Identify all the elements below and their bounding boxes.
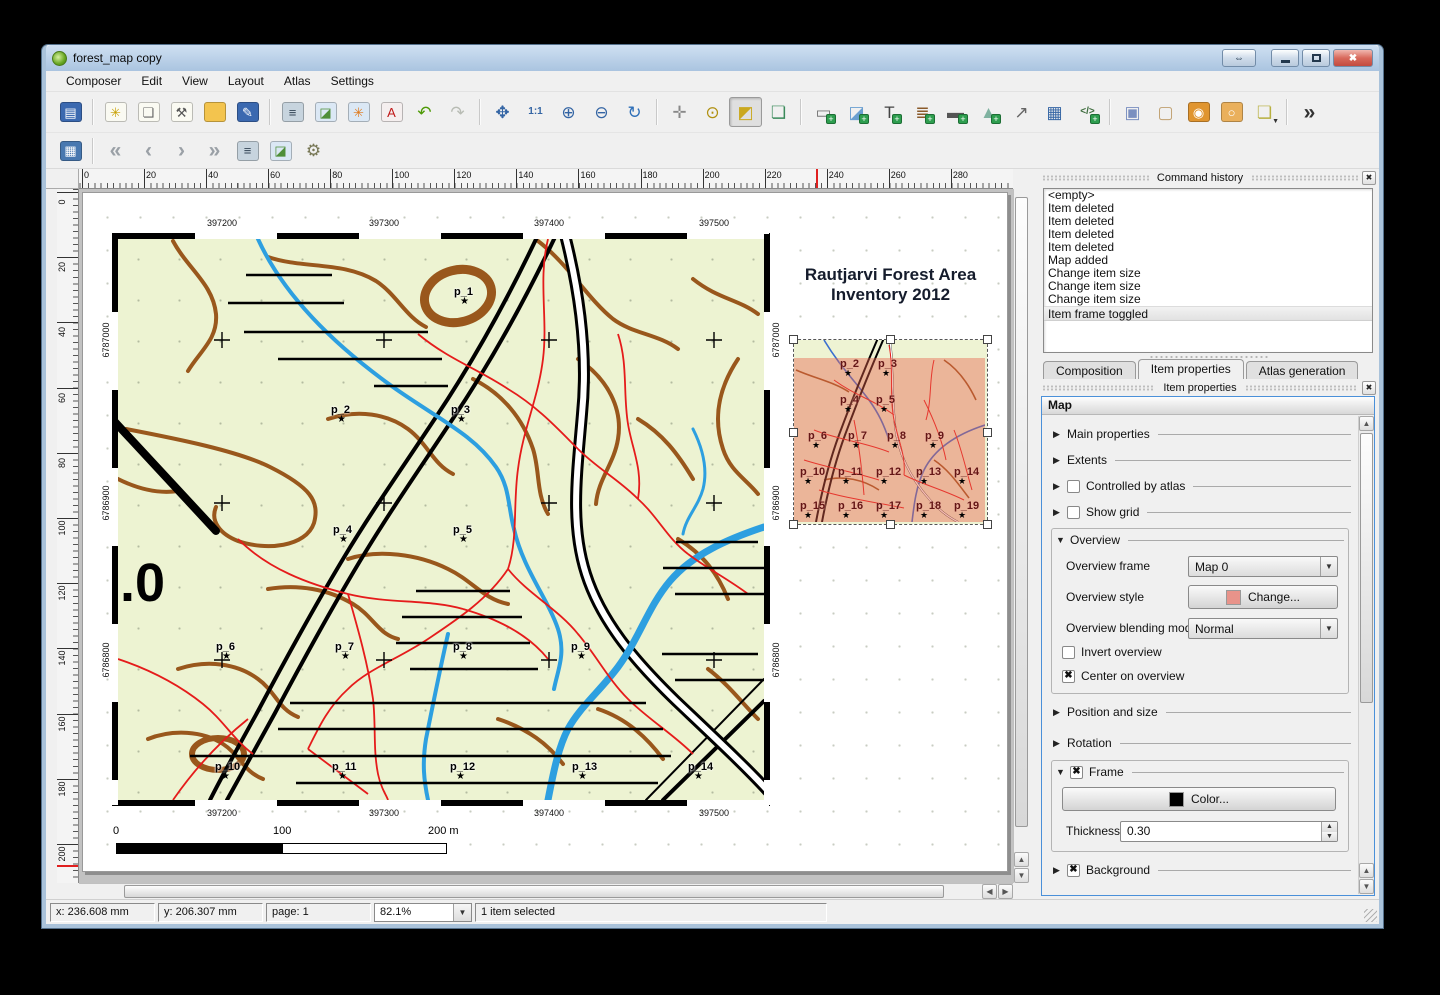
undo-icon: ↶ (417, 104, 431, 121)
section-line (1166, 712, 1351, 713)
overview-map-item[interactable]: p_2★p_3★p_4★p_5★p_6★p_7★p_8★p_9★p_10★p_1… (794, 340, 987, 524)
add-attribute-table-button[interactable]: ▦ (1038, 97, 1071, 127)
menu-view[interactable]: View (172, 72, 218, 90)
scroll-right-button[interactable]: ▶ (998, 884, 1013, 899)
duplicate-composition-icon: ❏ (138, 102, 160, 122)
panel-scroll-down-button[interactable]: ▼ (1359, 879, 1374, 894)
section-background[interactable]: ▶ ✖ Background (1053, 862, 1351, 878)
map-point-p_6: p_6★ (216, 637, 256, 662)
redo-button[interactable]: ↷ (441, 97, 474, 127)
map-drawing: .0 (118, 239, 764, 800)
controlled-by-atlas-checkbox[interactable] (1067, 480, 1080, 493)
chevron-down-icon: ▼ (453, 904, 471, 921)
section-main-properties[interactable]: ▶ Main properties (1053, 426, 1351, 442)
canvas-horizontal-scrollbar[interactable]: ◀ ▶ (79, 883, 1013, 899)
ruler-tick (206, 169, 207, 189)
ruler-corner (46, 169, 79, 189)
section-show-grid[interactable]: ▶ Show grid (1053, 504, 1351, 520)
horizontal-ruler: 0204060801001201401601802002202402602803… (79, 169, 1013, 189)
selection-handle-nw[interactable] (789, 335, 798, 344)
section-line (1158, 434, 1351, 435)
overview-point-p_19: p_19★ (954, 496, 979, 520)
command-history-title: Command history (1149, 172, 1251, 184)
section-label: Rotation (1067, 736, 1112, 750)
zoom-full-button[interactable]: ✥ (486, 97, 519, 127)
map-canvas[interactable]: .0 p_1★p_2★p_3★p_4★p_5★p_6★p_7★p_8★p_9★p… (118, 239, 764, 800)
ruler-row: 0204060801001201401601802002202402602803… (46, 169, 1036, 189)
frame-groupbox: ▼ ✖ Frame Color... Thickness (1051, 760, 1349, 852)
panel-scroll-up2-button[interactable]: ▲ (1359, 863, 1374, 878)
add-arrow-button[interactable]: ↗ (1005, 97, 1038, 127)
ruler-tick (703, 169, 704, 189)
save-as-template-button[interactable]: ✎ (231, 97, 264, 127)
overview-frame-combo[interactable]: Map 0 ▼ (1188, 556, 1338, 577)
section-label: Controlled by atlas (1086, 479, 1185, 493)
background-checkbox[interactable]: ✖ (1067, 864, 1080, 877)
refresh-view-button[interactable]: ↻ (618, 97, 651, 127)
item-properties-close-button[interactable]: ✖ (1362, 381, 1376, 395)
selection-handle-sw[interactable] (789, 520, 798, 529)
resize-grip[interactable] (1364, 909, 1377, 922)
ruler-number: 100 (57, 513, 67, 543)
menu-layout[interactable]: Layout (218, 72, 274, 90)
menu-settings[interactable]: Settings (321, 72, 384, 90)
overview-point-p_11: p_11★ (838, 462, 862, 486)
status-bar: x: 236.608 mm y: 206.307 mm page: 1 82.1… (46, 899, 1379, 924)
add-attribute-table-icon: ▦ (1046, 104, 1062, 121)
panel-scroll-thumb[interactable] (1360, 433, 1373, 703)
menu-atlas[interactable]: Atlas (274, 72, 321, 90)
map-point-p_8: p_8★ (453, 637, 493, 662)
ruler-number: 160 (57, 709, 67, 739)
print-atlas-button[interactable]: ≡ (231, 136, 264, 166)
pan-button[interactable]: ✛ (663, 97, 696, 127)
dock-title-texture (1251, 175, 1358, 181)
ruler-number: 120 (456, 170, 471, 180)
star-marker-icon: ★ (842, 511, 863, 520)
canvas-area: 0204060801001201401601802002202402602803… (46, 169, 1036, 899)
tab-composition[interactable]: Composition (1043, 361, 1136, 379)
spin-down-icon[interactable]: ▼ (1322, 832, 1337, 842)
star-marker-icon: ★ (459, 535, 493, 545)
ruler-number: 140 (518, 170, 533, 180)
item-properties-title: Item properties (1155, 382, 1244, 394)
previous-feature-icon: ‹ (145, 140, 152, 161)
menu-edit[interactable]: Edit (131, 72, 172, 90)
ruler-tick (889, 169, 890, 189)
next-feature-icon: › (178, 140, 185, 161)
menu-composer[interactable]: Composer (56, 72, 131, 90)
section-line (1120, 743, 1351, 744)
next-feature-button[interactable]: › (165, 136, 198, 166)
close-button[interactable]: ✖ (1333, 49, 1373, 67)
section-line (1132, 772, 1344, 773)
toolbar-separator (269, 99, 271, 125)
ruler-number: 20 (57, 252, 67, 282)
overview-blending-value: Normal (1189, 622, 1320, 636)
map-point-p_7: p_7★ (335, 637, 375, 662)
redo-icon: ↷ (450, 104, 464, 121)
section-line (1147, 512, 1351, 513)
ruler-tick (827, 169, 828, 189)
command-history-close-button[interactable]: ✖ (1362, 171, 1376, 185)
section-label: Position and size (1067, 705, 1158, 719)
map-point-p_9: p_9★ (571, 637, 611, 662)
window-title: forest_map copy (73, 51, 1219, 65)
open-composition-icon (204, 102, 226, 122)
group-items-button[interactable]: ▣ (1116, 97, 1149, 127)
star-marker-icon: ★ (456, 772, 490, 782)
overview-point-p_13: p_13★ (916, 462, 941, 486)
overview-map-canvas: p_2★p_3★p_4★p_5★p_6★p_7★p_8★p_9★p_10★p_1… (794, 340, 987, 524)
chevron-right-icon: ▶ (1053, 481, 1067, 492)
preview-atlas-button[interactable]: ▦ (54, 136, 87, 166)
export-atlas-as-image-button[interactable]: ◪ (264, 136, 297, 166)
toolbar-overflow-button[interactable]: » (1293, 97, 1326, 127)
zoom-out-icon: ⊖ (594, 104, 608, 121)
command-history-list[interactable]: <empty>Item deletedItem deletedItem dele… (1043, 188, 1373, 353)
map-point-p_3: p_3★ (451, 400, 491, 425)
add-label-button[interactable]: T+ (873, 97, 906, 127)
atlas-toolbar: ▦«‹›»≡◪⚙ (46, 133, 1379, 169)
map-item[interactable]: .0 p_1★p_2★p_3★p_4★p_5★p_6★p_7★p_8★p_9★p… (112, 233, 770, 806)
overview-point-p_9: p_9★ (925, 426, 944, 450)
section-controlled-by-atlas[interactable]: ▶ Controlled by atlas (1053, 478, 1351, 494)
save-project-icon: ▤ (60, 102, 82, 122)
minimize-button[interactable] (1271, 49, 1299, 67)
raise-selected-items-button[interactable]: ❏▼ (1248, 97, 1281, 127)
previous-feature-button[interactable]: ‹ (132, 136, 165, 166)
map-ytick-right: 6787000 (771, 315, 781, 365)
section-position-and-size[interactable]: ▶ Position and size (1053, 704, 1351, 720)
add-html-frame-button[interactable]: </>+ (1071, 97, 1104, 127)
chevron-down-icon: ▼ (1320, 619, 1337, 638)
overview-frame-label: Overview frame (1066, 559, 1150, 573)
ungroup-items-icon: ▢ (1157, 104, 1173, 121)
lock-selected-items-button[interactable]: ◉ (1182, 97, 1215, 127)
duplicate-composition-button[interactable]: ❏ (132, 97, 165, 127)
overview-point-p_10: p_10★ (800, 462, 825, 486)
ruler-number: 80 (332, 170, 342, 180)
history-item[interactable]: Change item size (1044, 293, 1372, 306)
zoom-in-button[interactable]: ⊕ (552, 97, 585, 127)
export-as-pdf-icon: A (381, 102, 403, 122)
chevron-down-icon: ▼ (1056, 535, 1070, 545)
toolbar-separator (92, 138, 94, 164)
menu-bar: ComposerEditViewLayoutAtlasSettings (46, 71, 1379, 92)
new-composition-button[interactable]: ✳ (99, 97, 132, 127)
item-properties-titlebar[interactable]: Item properties ✖ (1039, 379, 1379, 396)
ruler-number: 180 (643, 170, 658, 180)
star-marker-icon: ★ (804, 477, 825, 486)
section-rotation[interactable]: ▶ Rotation (1053, 735, 1351, 751)
plus-badge-icon: + (859, 114, 869, 124)
composition-viewport[interactable]: .0 p_1★p_2★p_3★p_4★p_5★p_6★p_7★p_8★p_9★p… (79, 189, 1013, 883)
ungroup-items-button[interactable]: ▢ (1149, 97, 1182, 127)
maximize-button[interactable] (1302, 49, 1330, 67)
zoom-in-icon: ⊕ (561, 104, 575, 121)
maximize-icon (1312, 54, 1321, 62)
map-title[interactable]: Rautjarvi Forest Area Inventory 2012 (778, 265, 1003, 305)
change-button-label: Change... (1248, 590, 1300, 604)
save-as-template-icon: ✎ (237, 102, 259, 122)
v-scroll-thumb[interactable] (1015, 197, 1028, 827)
dock-title-texture (1042, 175, 1149, 181)
close-icon: ✖ (1349, 53, 1357, 64)
invert-overview-row: Invert overview (1056, 645, 1344, 659)
selection-handle-ne[interactable] (983, 335, 992, 344)
star-marker-icon: ★ (221, 772, 255, 782)
overview-style-change-button[interactable]: Change... (1188, 585, 1338, 609)
undo-button[interactable]: ↶ (408, 97, 441, 127)
ruler-tick (951, 169, 952, 189)
export-as-svg-button[interactable]: ✳ (342, 97, 375, 127)
ruler-number: 120 (57, 578, 67, 608)
ruler-number: 280 (953, 170, 968, 180)
star-marker-icon: ★ (920, 511, 941, 520)
chevron-right-icon: ▶ (1053, 455, 1067, 466)
overview-style-swatch (1226, 590, 1241, 605)
section-line (1193, 486, 1351, 487)
spin-buttons[interactable]: ▲ ▼ (1321, 822, 1337, 841)
scroll-down-button[interactable]: ▼ (1014, 868, 1029, 883)
frame-checkbox[interactable]: ✖ (1070, 766, 1083, 779)
overview-point-p_8: p_8★ (887, 426, 906, 450)
h-scroll-row: ◀ ▶ (46, 883, 1036, 899)
map-xtick-top: 397500 (689, 218, 739, 228)
map-point-p_11: p_11★ (332, 757, 372, 782)
star-marker-icon: ★ (460, 297, 494, 307)
section-label: Overview (1070, 533, 1120, 547)
section-overview[interactable]: ▼ Overview (1056, 533, 1344, 547)
invert-overview-checkbox[interactable] (1062, 646, 1075, 659)
road-number-label: .0 (120, 553, 165, 613)
cursor-position-marker (816, 169, 818, 189)
composition-manager-icon: ⚒ (171, 102, 193, 122)
map-title-line1: Rautjarvi Forest Area (778, 265, 1003, 285)
add-new-map-button[interactable]: ▭+ (807, 97, 840, 127)
section-extents[interactable]: ▶ Extents (1053, 452, 1351, 468)
map-xtick-bottom: 397200 (197, 808, 247, 818)
map-ytick-left: 6787000 (101, 315, 111, 365)
ruler-tick (516, 169, 517, 189)
title-bar[interactable]: forest_map copy ⇔ ✖ (46, 45, 1379, 71)
pan-icon: ✛ (672, 104, 686, 121)
selection-handle-n[interactable] (886, 335, 895, 344)
ruler-number: 240 (829, 170, 844, 180)
overview-frame-value: Map 0 (1189, 560, 1320, 574)
add-scalebar-button[interactable]: ▬+ (939, 97, 972, 127)
ruler-tick (641, 169, 642, 189)
spin-up-icon[interactable]: ▲ (1322, 822, 1337, 832)
thickness-label: Thickness (1066, 824, 1120, 838)
show-grid-checkbox[interactable] (1067, 506, 1080, 519)
print-button[interactable]: ≡ (276, 97, 309, 127)
group-items-icon: ▣ (1124, 104, 1140, 121)
overview-point-p_3: p_3★ (878, 354, 897, 378)
star-marker-icon: ★ (338, 772, 372, 782)
star-marker-icon: ★ (578, 772, 612, 782)
toolbar-separator (1286, 99, 1288, 125)
command-history-titlebar[interactable]: Command history ✖ (1039, 169, 1379, 186)
export-as-image-icon: ◪ (315, 102, 337, 122)
ruler-tick (330, 169, 331, 189)
close-icon: ✖ (1366, 173, 1373, 182)
ruler-tick (82, 169, 83, 189)
overview-point-p_14: p_14★ (954, 462, 979, 486)
status-x: x: 236.608 mm (50, 903, 155, 922)
zoom-combo[interactable]: 82.1% ▼ (374, 903, 472, 922)
overview-point-p_17: p_17★ (876, 496, 901, 520)
map-ytick-left: 6786800 (101, 635, 111, 685)
star-marker-icon: ★ (844, 369, 859, 378)
dock-title-texture (1245, 385, 1358, 391)
ruler-number: 160 (580, 170, 595, 180)
ruler-tick (144, 169, 145, 189)
history-item[interactable]: Item frame toggled (1044, 306, 1372, 321)
tab-item-properties[interactable]: Item properties (1138, 359, 1244, 379)
map-ytick-right: 6786900 (771, 478, 781, 528)
toolbar-overflow-icon: » (1304, 102, 1316, 123)
export-as-pdf-button[interactable]: A (375, 97, 408, 127)
canvas-vertical-scrollbar[interactable]: ▲ ▼ (1013, 189, 1029, 883)
star-marker-icon: ★ (842, 477, 862, 486)
plus-badge-icon: + (958, 114, 968, 124)
composition-manager-button[interactable]: ⚒ (165, 97, 198, 127)
shade-window-button[interactable]: ⇔ (1222, 49, 1256, 67)
selection-handle-w[interactable] (789, 428, 798, 437)
atlas-settings-button[interactable]: ⚙ (297, 136, 330, 166)
map-point-p_1: p_1★ (454, 282, 494, 307)
ruler-tick (392, 169, 393, 189)
map-point-p_12: p_12★ (450, 757, 490, 782)
overview-point-p_18: p_18★ (916, 496, 941, 520)
desktop: forest_map copy ⇔ ✖ ComposerEditViewLayo… (0, 0, 1440, 995)
zoom-out-button[interactable]: ⊖ (585, 97, 618, 127)
lock-selected-items-icon: ◉ (1188, 102, 1210, 122)
add-image-button[interactable]: ◪+ (840, 97, 873, 127)
map-point-p_13: p_13★ (572, 757, 612, 782)
save-project-button[interactable]: ▤ (54, 97, 87, 127)
star-marker-icon: ★ (337, 415, 371, 425)
ruler-number: 180 (57, 774, 67, 804)
scalebar-item[interactable] (116, 843, 447, 854)
plus-badge-icon: + (925, 114, 935, 124)
thickness-spinbox[interactable]: 0.30 ▲ ▼ (1120, 821, 1338, 842)
open-composition-button[interactable] (198, 97, 231, 127)
h-scroll-thumb[interactable] (124, 885, 944, 898)
composition-page[interactable]: .0 p_1★p_2★p_3★p_4★p_5★p_6★p_7★p_8★p_9★p… (82, 192, 1008, 872)
overview-point-p_7: p_7★ (848, 426, 867, 450)
qgis-logo-icon (52, 51, 67, 66)
ruler-number: 60 (57, 383, 67, 413)
item-type-header: Map (1042, 397, 1374, 415)
toolbar-separator (800, 99, 802, 125)
map-title-line2: Inventory 2012 (778, 285, 1003, 305)
toolbar-separator (92, 99, 94, 125)
chevron-down-icon: ▼ (1056, 767, 1070, 777)
first-feature-icon: « (110, 140, 122, 161)
selection-handle-e[interactable] (983, 428, 992, 437)
section-line (1128, 540, 1344, 541)
composer-window: forest_map copy ⇔ ✖ ComposerEditViewLayo… (42, 45, 1383, 928)
selection-handle-s[interactable] (886, 520, 895, 529)
first-feature-button[interactable]: « (99, 136, 132, 166)
dock-tabs: CompositionItem propertiesAtlas generati… (1043, 359, 1375, 379)
move-item-content-button[interactable]: ❏ (762, 97, 795, 127)
zoom-actual-size-button[interactable]: 1:1 (519, 97, 552, 127)
ruler-number: 40 (57, 317, 67, 347)
zoom-region-icon: ⊙ (705, 104, 719, 121)
tab-atlas-generation[interactable]: Atlas generation (1246, 361, 1359, 379)
plus-badge-icon: + (826, 114, 836, 124)
close-icon: ✖ (1366, 383, 1373, 392)
star-marker-icon: ★ (341, 652, 375, 662)
selection-handle-se[interactable] (983, 520, 992, 529)
scroll-left-button[interactable]: ◀ (982, 884, 997, 899)
add-arrow-icon: ↗ (1014, 104, 1028, 121)
star-marker-icon: ★ (577, 652, 611, 662)
zoom-full-icon: ✥ (495, 104, 509, 121)
export-as-image-button[interactable]: ◪ (309, 97, 342, 127)
ruler-number: 220 (767, 170, 782, 180)
center-on-overview-label: Center on overview (1081, 669, 1184, 683)
section-label: Background (1086, 863, 1150, 877)
last-feature-button[interactable]: » (198, 136, 231, 166)
export-atlas-as-image-icon: ◪ (270, 141, 292, 161)
center-on-overview-checkbox[interactable]: ✖ (1062, 670, 1075, 683)
ruler-number: 0 (84, 170, 89, 180)
preview-atlas-icon: ▦ (60, 141, 82, 161)
overview-point-p_4: p_4★ (840, 390, 859, 414)
color-button-label: Color... (1191, 792, 1229, 806)
star-marker-icon: ★ (457, 415, 491, 425)
scroll-up-button[interactable]: ▲ (1014, 852, 1029, 867)
atlas-settings-icon: ⚙ (306, 142, 321, 159)
overview-point-p_16: p_16★ (838, 496, 863, 520)
overview-groupbox: ▼ Overview Overview frame Map 0 ▼ Ove (1051, 528, 1349, 694)
thickness-value: 0.30 (1121, 822, 1321, 841)
ruler-number: 20 (146, 170, 156, 180)
overview-blending-combo[interactable]: Normal ▼ (1188, 618, 1338, 639)
map-xtick-top: 397200 (197, 218, 247, 228)
overview-point-p_12: p_12★ (876, 462, 901, 486)
section-frame[interactable]: ▼ ✖ Frame (1056, 765, 1344, 779)
map-xtick-bottom: 397500 (689, 808, 739, 818)
scalebar-segment-white (282, 844, 447, 853)
add-legend-button[interactable]: ≣+ (906, 97, 939, 127)
star-marker-icon: ★ (958, 511, 979, 520)
panel-scroll-up-button[interactable]: ▲ (1359, 416, 1374, 431)
map-frame-right (764, 234, 770, 805)
overview-style-label: Overview style (1066, 590, 1144, 604)
add-basic-shape-button[interactable]: ▲+ (972, 97, 1005, 127)
frame-color-button[interactable]: Color... (1062, 787, 1336, 811)
zoom-actual-size-icon: 1:1 (528, 107, 542, 117)
chevron-down-icon: ▼ (1272, 118, 1279, 125)
star-marker-icon: ★ (694, 772, 728, 782)
panel-scrollbar[interactable]: ▲ ▲ ▼ (1358, 416, 1374, 894)
unlock-all-items-button[interactable]: ○ (1215, 97, 1248, 127)
select-move-item-button[interactable]: ◩ (729, 97, 762, 127)
zoom-region-button[interactable]: ⊙ (696, 97, 729, 127)
section-line (1115, 460, 1351, 461)
status-message: 1 item selected (475, 903, 827, 922)
star-marker-icon: ★ (844, 405, 859, 414)
section-label: Main properties (1067, 427, 1150, 441)
export-as-svg-icon: ✳ (348, 102, 370, 122)
star-marker-icon: ★ (882, 369, 897, 378)
